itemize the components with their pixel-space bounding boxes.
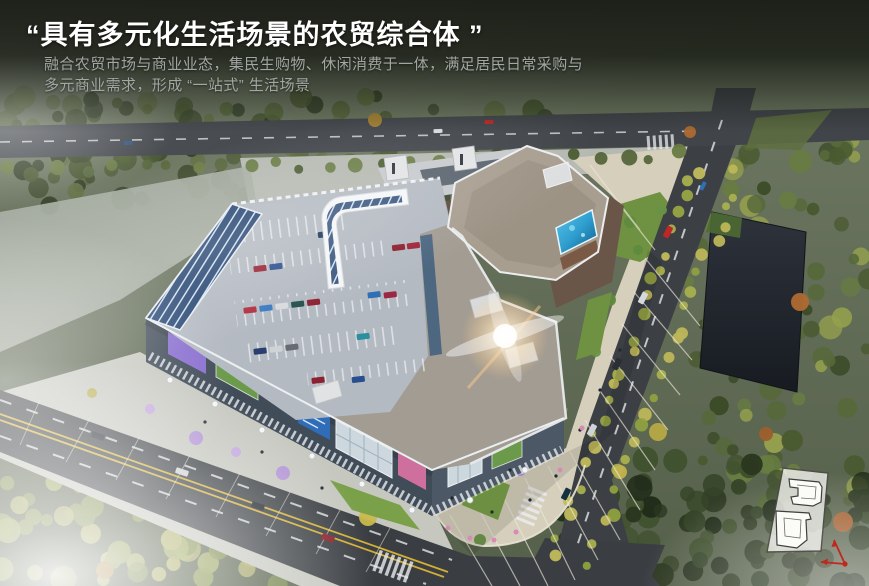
subtitle-line-2: 多元商业需求，形成 “一站式” 生活场景 xyxy=(44,75,583,96)
subtitle-line-1: 融合农贸市场与商业业态，集民生购物、休闲消费于一体，满足居民日常采购与 xyxy=(44,54,583,75)
header-overlay: “具有多元化生活场景的农贸综合体 ” 融合农贸市场与商业业态，集民生购物、休闲消… xyxy=(0,0,869,132)
slide-title: “具有多元化生活场景的农贸综合体 ” xyxy=(26,13,484,52)
slide: “具有多元化生活场景的农贸综合体 ” 融合农贸市场与商业业态，集民生购物、休闲消… xyxy=(0,0,869,586)
slide-subtitle: 融合农贸市场与商业业态，集民生购物、休闲消费于一体，满足居民日常采购与 多元商业… xyxy=(44,54,583,96)
